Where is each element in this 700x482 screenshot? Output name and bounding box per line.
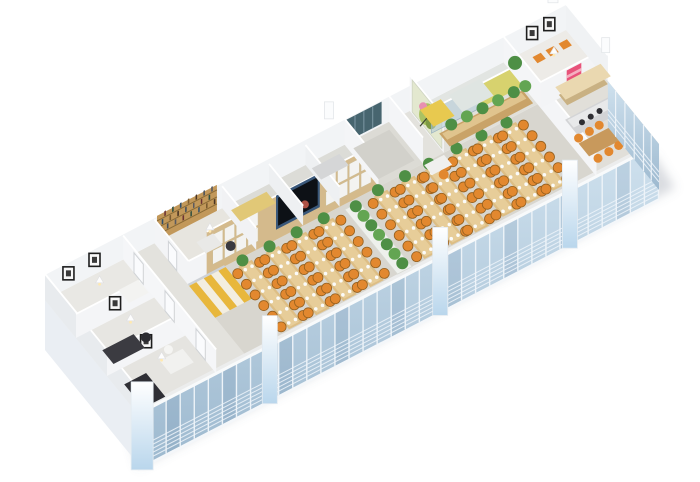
place-setting [447,193,451,197]
place-setting [507,161,511,165]
planter-plant [358,210,370,222]
dining-chair [437,193,447,203]
place-setting [322,258,326,262]
library-bookshelf-book [203,190,205,196]
dining-chair [454,215,464,225]
dining-chair [368,198,378,208]
dining-chair [413,206,423,216]
counter-plant-1 [445,119,457,131]
dining-chair [296,251,306,261]
counter-plant-6 [519,80,531,92]
waiting-room-picture-1-art [530,30,535,36]
place-setting [508,130,512,134]
dining-chair [377,209,387,219]
place-setting [368,279,372,283]
dining-chair [463,225,473,235]
place-setting [551,184,555,188]
place-setting [432,216,436,220]
place-setting [448,223,452,227]
place-setting [340,233,344,237]
dining-chair [322,283,332,293]
dining-chair [287,241,297,251]
dining-chair [357,280,367,290]
place-setting [430,201,434,205]
place-setting [508,206,512,210]
dining-chair [421,216,431,226]
aisle-plant [318,212,330,224]
place-setting [406,184,410,188]
library-bookshelf-book [209,194,211,200]
place-setting [439,182,443,186]
dining-chair [536,141,546,151]
aisle-plant [399,170,411,182]
place-setting [286,261,290,265]
counter-plant-3 [477,102,489,114]
library-bookshelf-book [214,199,216,205]
place-setting [412,226,416,230]
place-setting [313,247,317,251]
dining-chair [482,199,492,209]
bar-stool-1 [574,134,583,143]
place-setting [276,296,280,300]
parapet-fin-2 [548,0,558,3]
library-chair [226,241,236,251]
place-setting [467,167,471,171]
library-bookshelf-book [201,199,203,205]
place-setting [500,165,504,169]
dining-chair [507,186,517,196]
dining-chair [323,237,333,247]
place-setting [413,180,417,184]
dining-chair [553,163,563,173]
place-setting [558,180,562,184]
bar-appliance-1 [579,119,585,125]
place-setting [324,272,328,276]
counter-plant-5 [508,86,520,98]
dining-chair [404,195,414,205]
dining-chair [362,247,372,257]
dining-chair [532,173,542,183]
place-setting [543,173,547,177]
place-setting [375,276,379,280]
place-setting [482,174,486,178]
dining-chair [456,167,466,177]
library-bookshelf-book [167,223,169,229]
dining-chair [524,163,534,173]
place-setting [471,210,475,214]
dining-chair [481,154,491,164]
place-setting [429,247,433,251]
place-setting [287,321,291,325]
place-setting [463,200,467,204]
dining-chair [313,272,323,282]
library-bookshelf-book [180,202,182,208]
library-bookshelf-book [177,211,179,217]
dining-chair [499,176,509,186]
floorplan-render-stage [0,0,700,482]
place-setting [454,189,458,193]
ceiling-lamp-glow [553,54,556,57]
place-setting [303,282,307,286]
office-b-picture-art [113,300,118,306]
dining-chair [314,227,324,237]
place-setting [456,233,460,237]
place-setting [366,265,370,269]
dining-chair [544,152,554,162]
library-bookshelf-book [175,219,177,225]
place-setting [484,188,488,192]
place-setting [541,159,545,163]
place-setting [315,261,319,265]
place-setting [524,182,528,186]
bar-stool-2 [585,127,594,136]
dining-chair [241,279,251,289]
place-setting [268,286,272,290]
place-setting [415,194,419,198]
place-setting [339,279,343,283]
office-c-chair [164,345,173,354]
bar-appliance-3 [596,108,602,114]
dining-chair [498,131,508,141]
facade-column [262,316,277,404]
dining-chair [386,220,396,230]
dining-chair [353,236,363,246]
place-setting [423,205,427,209]
place-setting [549,169,553,173]
dining-chair [304,262,314,272]
library-bookshelf-book [185,207,187,213]
facade-column [433,227,448,315]
place-setting [321,304,325,308]
place-setting [405,230,409,234]
place-setting [351,258,355,262]
aisle-plant [372,184,384,196]
library-bookshelf-book [188,198,190,204]
place-setting [261,289,265,293]
library-bookshelf-book [164,210,166,216]
place-setting [348,290,352,294]
place-setting [259,275,263,279]
place-setting [279,265,283,269]
floorplan-3d-render [0,0,700,482]
dining-chair [403,241,413,251]
planter-plant [389,248,401,260]
counter-plant-2 [461,110,473,122]
place-setting [379,198,383,202]
place-setting [465,214,469,218]
place-setting [420,237,424,241]
place-setting [341,293,345,297]
place-setting [298,240,302,244]
place-setting [501,210,505,214]
place-setting [332,282,336,286]
ceiling-lamp-glow [98,283,101,286]
place-setting [295,272,299,276]
dining-chair [340,258,350,268]
place-setting [388,208,392,212]
place-setting [490,140,494,144]
dining-chair [428,183,438,193]
place-setting [342,247,346,251]
library-bookshelf-book [170,215,172,221]
library-bookshelf-book [162,219,164,225]
place-setting [449,237,453,241]
library-bookshelf-book [198,207,200,213]
place-setting [306,250,310,254]
library-bookshelf-book [206,203,208,209]
place-setting [250,264,254,268]
place-setting [396,219,400,223]
place-setting [445,178,449,182]
office-a-picture-2-art [92,257,97,263]
dining-chair [518,120,528,130]
dining-chair [349,269,359,279]
planter-plant [381,238,393,250]
place-setting [305,296,309,300]
dining-chair [506,141,516,151]
dining-chair [371,258,381,268]
place-setting [333,236,337,240]
place-setting [480,221,484,225]
place-setting [422,251,426,255]
place-setting [278,310,282,314]
dining-chair [395,184,405,194]
place-setting [509,175,513,179]
place-setting [312,293,316,297]
dining-chair [330,294,340,304]
dining-chair [419,172,429,182]
place-setting [532,148,536,152]
dining-chair [445,204,455,214]
bar-stool-5 [604,147,613,156]
planter-plant [396,257,408,269]
place-setting [277,250,281,254]
place-setting [518,186,522,190]
bar-appliance-2 [588,114,594,120]
aisle-plant [291,226,303,238]
dining-chair [516,197,526,207]
dining-chair [295,297,305,307]
ceiling-lamp-glow [209,230,212,233]
place-setting [473,163,477,167]
dining-chair [250,290,260,300]
dining-chair [345,226,355,236]
place-setting [243,268,247,272]
office-a-picture-1-art [66,270,71,276]
place-setting [533,193,537,197]
ceiling-lamp-glow [129,321,132,324]
place-setting [349,244,353,248]
library-bookshelf-book [183,215,185,221]
place-setting [492,154,496,158]
place-setting [314,307,318,311]
place-setting [491,185,495,189]
place-setting [359,268,363,272]
place-setting [271,254,275,258]
facade-column [131,382,153,470]
place-setting [439,212,443,216]
place-setting [270,300,274,304]
library-bookshelf-book [190,211,192,217]
dining-chair [465,178,475,188]
bar-stool-3 [595,121,604,130]
dining-chair [490,165,500,175]
parapet-fin-1 [324,102,333,119]
waiting-room-picture-2-art [547,21,552,27]
place-setting [288,275,292,279]
dining-chair [541,184,551,194]
place-setting [358,254,362,258]
place-setting [516,172,520,176]
place-setting [403,216,407,220]
place-setting [297,286,301,290]
mural-desk-chair [439,169,449,179]
place-setting [493,199,497,203]
place-setting [465,153,469,157]
place-setting [386,194,390,198]
place-setting [475,178,479,182]
dining-chair [412,252,422,262]
library-bookshelf-book [196,194,198,200]
planter-plant [373,229,385,241]
dining-chair [473,144,483,154]
place-setting [252,279,256,283]
office-b-chair [141,332,151,342]
place-setting [499,195,503,199]
dining-chair [331,248,341,258]
place-setting [473,224,477,228]
place-setting [523,138,527,142]
place-setting [483,143,487,147]
place-setting [456,203,460,207]
dining-chair [336,215,346,225]
dining-chair [491,210,501,220]
dining-chair [394,230,404,240]
place-setting [421,191,425,195]
place-setting [525,152,529,156]
place-setting [517,141,521,145]
ceiling-lamp-glow [160,359,163,362]
library-bookshelf-book [172,206,174,212]
parapet-fin-3 [602,38,610,53]
place-setting [285,307,289,311]
bar-stool-4 [594,154,603,163]
place-setting [332,222,336,226]
library-bookshelf-book [193,203,195,209]
place-setting [458,156,462,160]
planter-plant [350,200,362,212]
place-setting [304,236,308,240]
place-setting [534,162,538,166]
counter-plant-4 [492,94,504,106]
facade-column [562,160,577,248]
planter-plant [365,219,377,231]
aisle-plant [236,254,248,266]
place-setting [498,150,502,154]
dining-chair [269,265,279,275]
dining-chair [259,301,269,311]
dining-chair [515,152,525,162]
place-setting [394,205,398,209]
place-setting [294,318,298,322]
place-setting [526,197,530,201]
place-setting [330,268,334,272]
dining-chair [286,287,296,297]
dining-chair [260,255,270,265]
place-setting [325,226,329,230]
dining-chair [277,276,287,286]
place-setting [515,127,519,131]
dining-chair [474,189,484,199]
dining-chair [527,131,537,141]
waiting-plant [508,56,522,70]
dining-chair [303,308,313,318]
place-setting [414,240,418,244]
library-bookshelf-book [211,186,213,192]
dining-chair [379,268,389,278]
aisle-plant [264,240,276,252]
dining-chair [233,269,243,279]
